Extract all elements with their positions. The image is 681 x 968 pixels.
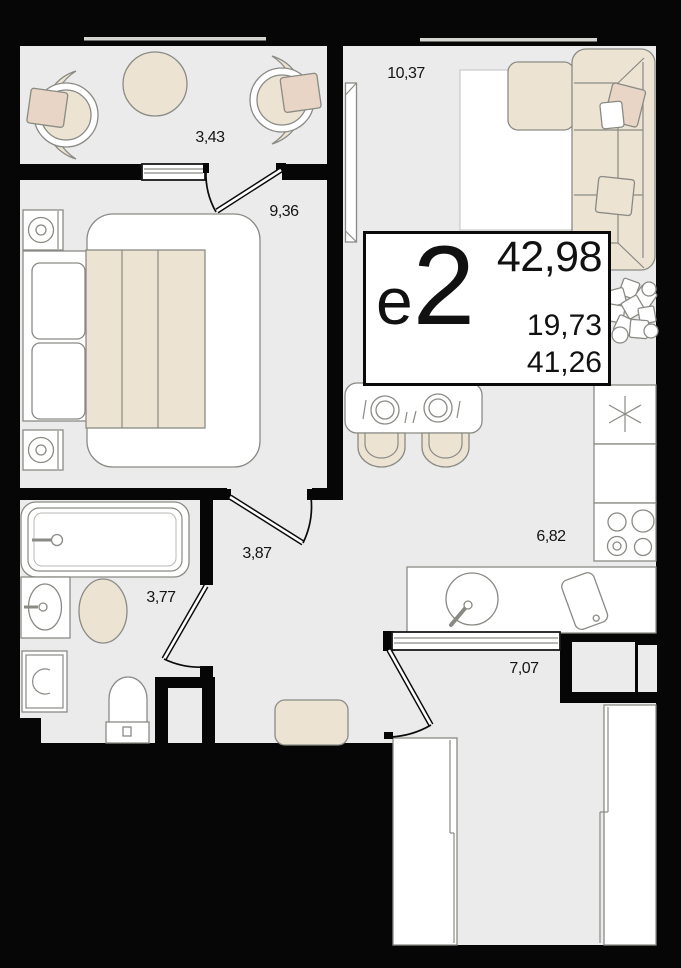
wardrobe-right xyxy=(600,705,656,945)
wardrobe-left xyxy=(393,738,457,945)
sofa-pillow-lower xyxy=(595,176,635,216)
washbasin xyxy=(21,577,70,638)
corridor-area-label: 7,07 xyxy=(509,661,538,677)
counter-bottom xyxy=(407,567,656,633)
counter-right xyxy=(594,444,656,503)
unit-type: е2 xyxy=(376,230,473,342)
chair-pillow xyxy=(27,88,69,128)
unit-type-digit: 2 xyxy=(413,230,473,342)
sofa-chaise xyxy=(508,62,574,130)
bathroom-area-label: 3,77 xyxy=(146,590,175,606)
loggia-glazing-line xyxy=(84,37,266,41)
bedroom-door-opening xyxy=(227,488,312,501)
wall-stub xyxy=(20,718,41,743)
vent-unit xyxy=(594,385,656,444)
bed-pillow-bottom xyxy=(32,343,85,419)
bed-pillow-top xyxy=(32,263,85,339)
unit-type-letter: е xyxy=(376,268,413,334)
corridor-window xyxy=(392,632,560,650)
sofa-pillow-white xyxy=(600,101,625,129)
unit-info-badge: е2 42,98 19,73 41,26 xyxy=(363,231,611,386)
chair-pillow xyxy=(280,73,322,113)
loggia-window xyxy=(142,164,205,180)
dining-table xyxy=(345,383,482,433)
secondary-area: 41,26 xyxy=(527,348,602,378)
nightstand-bottom xyxy=(23,430,63,470)
stove xyxy=(594,503,656,561)
bed-blanket xyxy=(86,250,205,428)
nightstand-top xyxy=(23,210,63,250)
bath-rug xyxy=(79,579,127,643)
kitchen-area-label: 6,82 xyxy=(536,529,565,545)
bedroom-furniture xyxy=(23,210,260,470)
round-table xyxy=(123,52,187,116)
doormat xyxy=(275,700,348,745)
window-leaf-panel xyxy=(346,83,357,242)
hallway-area-label: 3,87 xyxy=(242,546,271,562)
living-glazing-line xyxy=(420,38,597,42)
plumbing-shaft-inset xyxy=(168,688,202,743)
living-area: 19,73 xyxy=(527,311,602,341)
floor-plan: 3,43 9,36 10,37 6,82 3,77 3,87 7,07 е2 4… xyxy=(0,0,681,968)
sink xyxy=(446,573,498,625)
floor-plan-drawing xyxy=(0,0,681,968)
dining-chair-right xyxy=(422,433,469,467)
total-area: 42,98 xyxy=(497,236,602,279)
bedroom-area-label: 9,36 xyxy=(269,204,298,220)
shaft-inset-right xyxy=(638,645,657,692)
toilet xyxy=(106,677,149,743)
shaft-inset-left xyxy=(572,642,635,692)
washing-machine xyxy=(22,651,67,712)
loggia-area-label: 3,43 xyxy=(195,130,224,146)
living-room-area-label: 10,37 xyxy=(387,66,425,82)
dining-chair-left xyxy=(358,433,405,467)
bathtub xyxy=(21,502,189,577)
